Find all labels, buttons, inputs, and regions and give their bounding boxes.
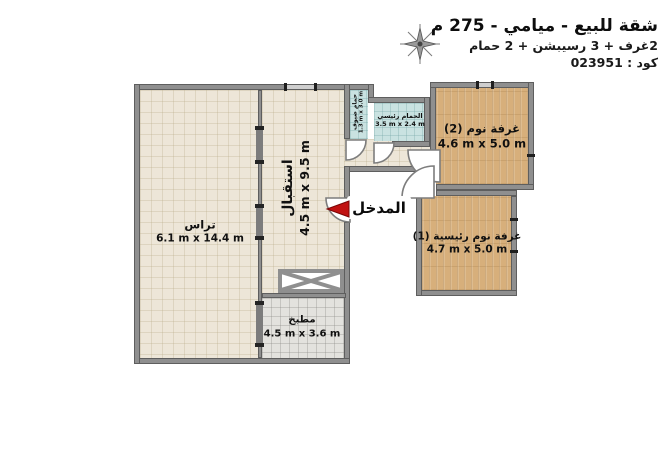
room-name: تراس — [156, 218, 244, 232]
main-bathroom-label: الحمام رئيسي 3.5 m x 2.4 m — [375, 112, 425, 128]
wall — [528, 82, 534, 190]
partition-wall — [258, 90, 262, 358]
room-dims: 4.5 m x 3.6 m — [264, 329, 341, 340]
guest-bathroom-label: حمام ضيوف 1.3 m x 3.0 m — [352, 91, 365, 133]
room-name: مطبخ — [264, 315, 341, 326]
entrance-arrow-icon — [325, 200, 351, 218]
wall — [430, 82, 436, 154]
room-dims: 1.3 m x 3.0 m — [359, 91, 365, 133]
room-name: استقبال — [280, 140, 296, 236]
wall — [134, 358, 350, 364]
wall — [416, 290, 517, 296]
wall — [344, 166, 350, 198]
reception-label: استقبال 4.5 m x 9.5 m — [280, 140, 312, 236]
room-name: غرفة نوم (2) — [438, 122, 526, 136]
wall — [368, 97, 430, 103]
room-name: غرفة نوم رئيسية (1) — [413, 231, 522, 243]
wall — [430, 82, 534, 88]
room-dims: 4.5 m x 9.5 m — [297, 140, 312, 236]
wall — [134, 84, 140, 364]
room-dims: 6.1 m x 14.4 m — [156, 233, 244, 245]
room-dims: 4.7 m x 5.0 m — [413, 244, 522, 256]
wall — [262, 293, 346, 298]
wall — [436, 190, 517, 196]
entrance-label: المدخل — [347, 196, 411, 219]
room-name: الحمام رئيسي — [375, 112, 425, 120]
wall — [134, 84, 374, 90]
listing-code: كود : 023951 — [431, 55, 658, 71]
master-bedroom-label: غرفة نوم رئيسية (1) 4.7 m x 5.0 m — [413, 231, 522, 256]
terrace-label: تراس 6.1 m x 14.4 m — [156, 218, 244, 245]
entrance-text: المدخل — [352, 199, 406, 217]
shaft-box — [278, 269, 344, 293]
wall — [392, 141, 430, 147]
room-name: حمام ضيوف — [352, 91, 359, 133]
page-title: شقة للبيع - ميامي - 275 م — [431, 16, 658, 37]
plan-header: شقة للبيع - ميامي - 275 م 2غرف + 3 رسيبش… — [431, 16, 658, 71]
room-dims: 3.5 m x 2.4 m — [375, 120, 425, 128]
floor-plan-page: شقة للبيع - ميامي - 275 م 2غرف + 3 رسيبش… — [0, 0, 668, 452]
wall — [344, 166, 422, 172]
room-dims: 4.6 m x 5.0 m — [438, 137, 526, 151]
wall — [344, 84, 350, 139]
kitchen-label: مطبخ 4.5 m x 3.6 m — [264, 315, 341, 340]
compass-rose-icon — [396, 20, 444, 68]
page-subtitle: 2غرف + 3 رسيبشن + 2 حمام — [431, 38, 658, 54]
bedroom2-label: غرفة نوم (2) 4.6 m x 5.0 m — [438, 122, 526, 151]
